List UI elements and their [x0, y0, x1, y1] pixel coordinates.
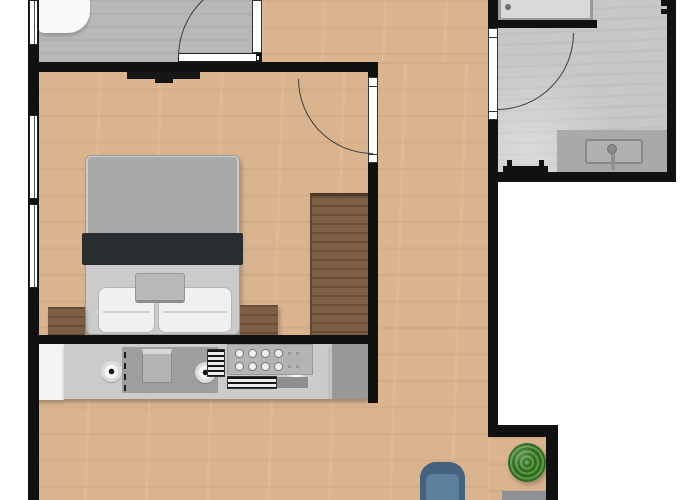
window-symbol	[29, 204, 38, 288]
sink-divider	[124, 352, 126, 391]
stove-indicator	[288, 352, 291, 355]
wall-bedroom-top	[28, 62, 378, 72]
stove-tray	[277, 377, 308, 388]
jamb-line	[489, 111, 497, 112]
stove-grill-left	[207, 349, 225, 377]
kitchen-appliance	[330, 344, 368, 399]
armchair-seat	[426, 474, 459, 500]
shower-drain	[505, 4, 511, 10]
stove-grill-bottom	[227, 376, 277, 389]
window-mullion	[34, 116, 35, 198]
plant	[508, 443, 546, 482]
stove-knob	[274, 349, 283, 358]
tv	[127, 72, 200, 79]
vanity-faucet	[607, 144, 617, 154]
pillow-seam	[103, 311, 150, 313]
tv-mount	[155, 79, 173, 83]
shower-tray	[498, 0, 593, 21]
faucet-stem	[611, 152, 615, 170]
stove-knob	[274, 362, 283, 371]
sink-basin	[142, 349, 172, 383]
pillow-seam	[163, 311, 227, 313]
stove-knob	[261, 349, 270, 358]
stove-knob	[235, 362, 244, 371]
bed-tray	[135, 273, 185, 303]
stove-indicator	[288, 365, 291, 368]
floor-plan	[0, 0, 700, 500]
window-symbol	[29, 115, 38, 199]
nightstand-right	[240, 305, 278, 335]
jamb-line	[369, 154, 377, 155]
stove-knob-panel	[227, 344, 313, 375]
window-mullion	[34, 205, 35, 287]
nightstand-left	[48, 307, 85, 335]
kitchen-cabinet	[38, 344, 64, 400]
bed-duvet	[88, 157, 237, 233]
armchair	[420, 462, 465, 500]
burner-1	[101, 361, 122, 382]
stove-knob	[248, 362, 257, 371]
bed-blanket-band	[82, 233, 243, 265]
stove-knob	[248, 349, 257, 358]
hallway-floor	[262, 0, 488, 62]
radiator-leg	[539, 160, 544, 166]
radiator-leg	[507, 160, 512, 166]
side-table	[502, 491, 548, 500]
wall-bedroom-bottom	[28, 335, 378, 344]
vanity	[557, 130, 668, 172]
wall-nook-right	[546, 437, 558, 500]
stove-knob	[235, 349, 244, 358]
wall-bathroom-bottom	[488, 172, 676, 182]
stove-indicator	[296, 352, 299, 355]
jamb-line	[489, 37, 497, 38]
wall-nook-top	[488, 425, 558, 437]
wall-shower	[493, 20, 597, 28]
wall-bathroom-right	[667, 0, 676, 182]
window-mullion	[34, 1, 35, 44]
desk	[310, 193, 368, 335]
stove-knob	[261, 362, 270, 371]
window-symbol	[29, 0, 38, 45]
stove-indicator	[296, 365, 299, 368]
